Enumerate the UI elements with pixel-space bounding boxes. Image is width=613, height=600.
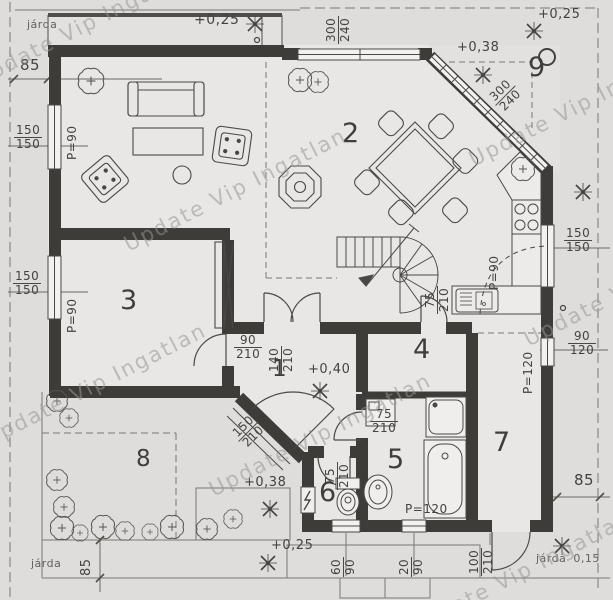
window-bath-south-size: 20 90 bbox=[398, 557, 426, 577]
window-kitchen-east-size: 150 150 bbox=[564, 227, 592, 255]
door-wc-size: 75 210 bbox=[324, 462, 352, 490]
door-living-double-size: 140 210 bbox=[268, 346, 296, 374]
door-pantry-size: 75 210 bbox=[424, 286, 452, 314]
level-terrace-top-left: +0,25 bbox=[194, 13, 239, 27]
door-entry-size: 150 210 bbox=[229, 412, 269, 452]
room-3-label: 3 bbox=[120, 287, 137, 314]
window-left-upper-size: 150 150 bbox=[14, 124, 42, 152]
level-terrace-top-right: +0,25 bbox=[538, 8, 580, 21]
window-left-lower-size: 150 150 bbox=[13, 270, 41, 298]
room-4-label: 4 bbox=[413, 336, 430, 363]
parapet-room7: P=120 bbox=[522, 351, 534, 394]
watermark: Update Vip Ingatlan bbox=[0, 0, 200, 91]
dim-85-bottom-left: 85 bbox=[80, 558, 93, 576]
window-room7-east-size: 90 120 bbox=[568, 330, 596, 358]
door-terrace-room7-size: 100 210 bbox=[468, 548, 496, 576]
window-top-north-size: 300 240 bbox=[325, 16, 353, 44]
window-diagonal-ne-size: 300 240 bbox=[486, 76, 526, 116]
floor-plan-scan: járda járda járda 0,15 +0,25 +0,25 +0,38… bbox=[0, 0, 613, 600]
parapet-left-upper: P=90 bbox=[66, 125, 78, 160]
level-hall: +0,40 bbox=[308, 363, 350, 376]
parapet-bath: P=120 bbox=[405, 503, 448, 515]
parapet-kitchen: P=90 bbox=[488, 255, 500, 290]
watermark: Update Vip Ingatlan bbox=[0, 318, 210, 451]
dim-85-bottom-right: 85 bbox=[574, 473, 594, 488]
watermark: Update Vip Ingatlan bbox=[120, 123, 350, 256]
window-wc-south-size: 60 90 bbox=[330, 557, 358, 577]
label-layer: járda járda járda 0,15 +0,25 +0,25 +0,38… bbox=[0, 0, 613, 600]
parapet-left-lower: P=90 bbox=[66, 298, 78, 333]
level-terrace-ne: +0,38 bbox=[457, 41, 499, 54]
door-room3-size: 90 210 bbox=[234, 334, 262, 362]
room-9-label: 9 bbox=[528, 54, 545, 81]
room-7-label: 7 bbox=[493, 429, 510, 456]
watermark: Update Vip Ingatlan bbox=[405, 506, 613, 600]
room-5-label: 5 bbox=[387, 446, 404, 473]
level-porch-bottom: +0,25 bbox=[271, 539, 313, 552]
sidewalk-label-bottom: járda bbox=[31, 558, 61, 569]
room-8-label: 8 bbox=[136, 448, 151, 471]
